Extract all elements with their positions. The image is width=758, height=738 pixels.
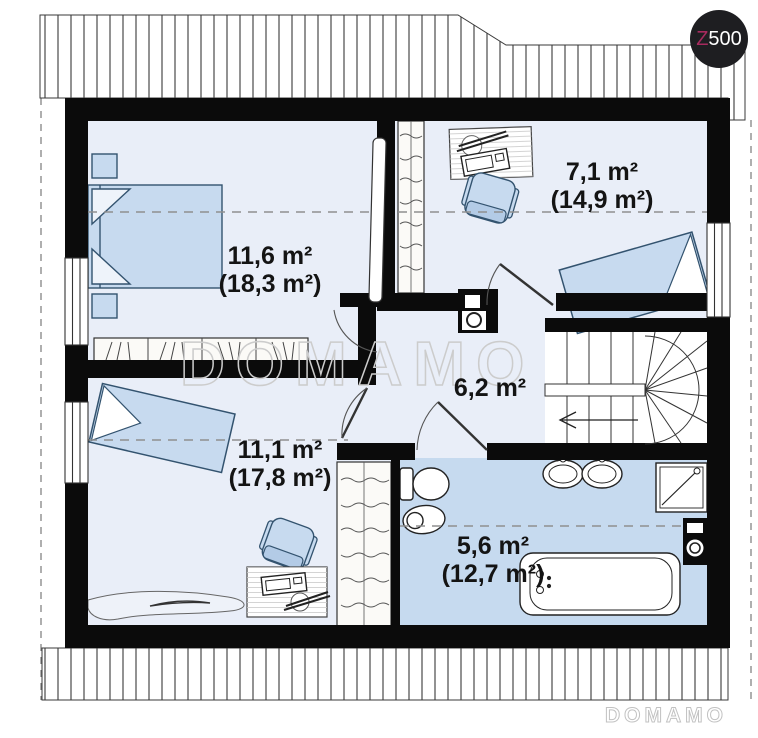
area-value: 6,2 m²	[454, 374, 526, 402]
shower	[656, 463, 707, 512]
nightstand	[92, 154, 117, 178]
room-label-hall: 6,2 m²	[454, 374, 526, 402]
wall-room2-hall-right	[556, 293, 707, 311]
room-label-bathroom: 5,6 m² (12,7 m²)	[442, 532, 545, 588]
vent-niche-bathroom	[683, 518, 707, 565]
floor-plan: DOMAMO DOMAMO 11,6 m² (18,3 m²) 7,1 m² (…	[0, 0, 758, 738]
wall-bathroom-left	[391, 458, 400, 625]
window-room-2	[707, 223, 730, 317]
room-label-room-2: 7,1 m² (14,9 m²)	[551, 158, 654, 214]
room-2-desk	[449, 127, 533, 180]
area-value: 11,1 m²	[229, 436, 332, 464]
z500-logo: Z500	[690, 10, 748, 68]
room-label-bedroom-3: 11,1 m² (17,8 m²)	[229, 436, 332, 492]
window-bedroom-3	[65, 402, 88, 483]
window-bedroom-1	[65, 258, 88, 345]
area-total-value: (18,3 m²)	[219, 270, 322, 298]
toilet	[400, 468, 449, 500]
area-value: 5,6 m²	[442, 532, 545, 560]
room-2-wardrobe	[398, 121, 424, 293]
stair-divider	[545, 384, 645, 396]
roof-band-bottom	[42, 648, 728, 700]
area-total-value: (17,8 m²)	[229, 464, 332, 492]
area-total-value: (14,9 m²)	[551, 186, 654, 214]
wall-hall-bath-right	[487, 443, 707, 460]
wall-hall-bath-left	[337, 443, 415, 460]
logo-accent-letter: Z	[696, 28, 708, 51]
wall-stair-top	[545, 318, 707, 332]
bedroom-3-wardrobe	[337, 462, 391, 627]
area-value: 11,6 m²	[219, 242, 322, 270]
area-value: 7,1 m²	[551, 158, 654, 186]
bedroom-3-desk	[247, 567, 330, 617]
nightstand	[92, 294, 117, 318]
logo-number: 500	[708, 28, 741, 51]
vent-niche-hall	[458, 289, 498, 333]
room-label-bedroom-1: 11,6 m² (18,3 m²)	[219, 242, 322, 298]
footer-watermark: DOMAMO	[605, 704, 727, 728]
area-total-value: (12,7 m²)	[442, 560, 545, 588]
